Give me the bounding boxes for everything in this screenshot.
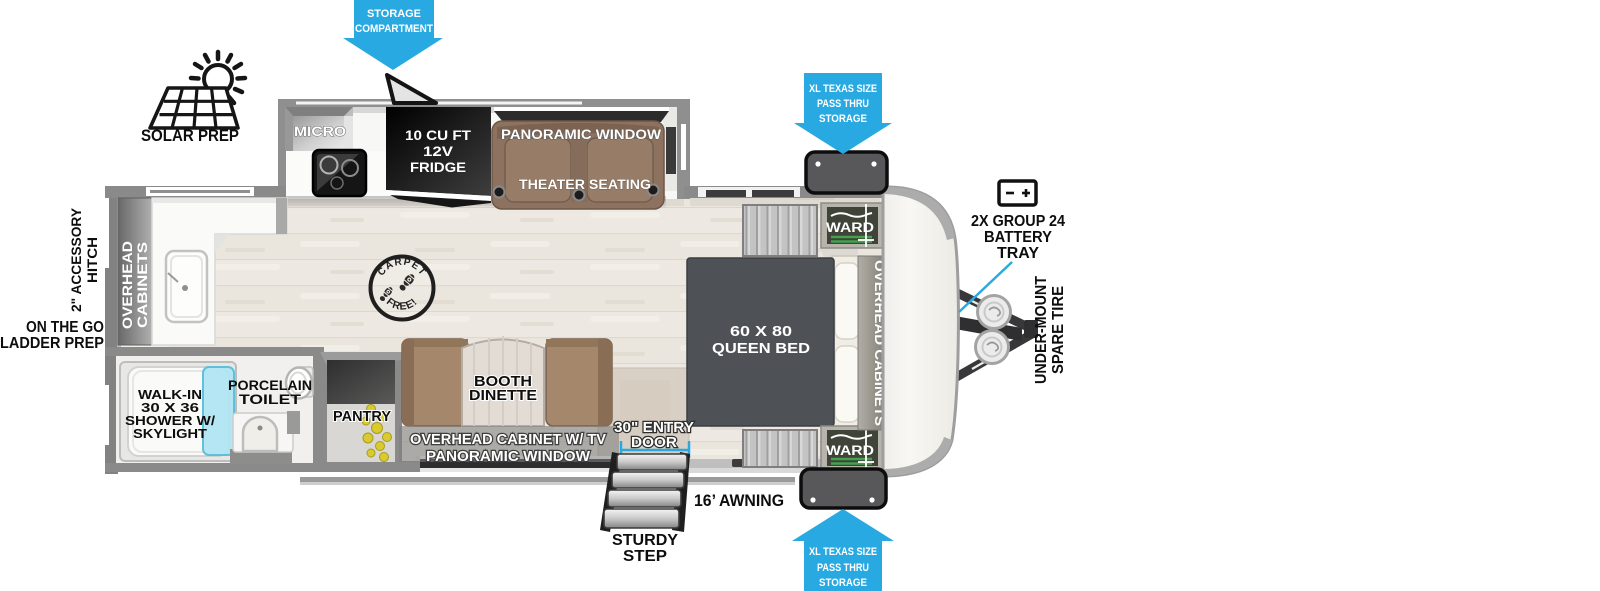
svg-text:10 CU FT: 10 CU FT bbox=[405, 127, 471, 143]
svg-text:SKYLIGHT: SKYLIGHT bbox=[133, 426, 207, 441]
svg-text:CABINETS: CABINETS bbox=[135, 242, 150, 328]
svg-text:QUEEN BED: QUEEN BED bbox=[712, 341, 810, 357]
svg-text:XL TEXAS SIZE: XL TEXAS SIZE bbox=[809, 546, 877, 558]
svg-text:WARD: WARD bbox=[826, 443, 874, 458]
svg-text:XL TEXAS SIZE: XL TEXAS SIZE bbox=[809, 83, 877, 95]
svg-text:HITCH: HITCH bbox=[85, 237, 100, 283]
svg-text:OVERHEAD: OVERHEAD bbox=[120, 241, 135, 329]
svg-text:30" ENTRY: 30" ENTRY bbox=[614, 420, 694, 436]
svg-text:PASS THRU: PASS THRU bbox=[817, 562, 869, 574]
svg-text:UNDER-MOUNT: UNDER-MOUNT bbox=[1033, 276, 1050, 384]
svg-text:TRAY: TRAY bbox=[997, 245, 1040, 262]
svg-text:MICRO: MICRO bbox=[294, 124, 346, 139]
svg-text:12V: 12V bbox=[423, 143, 454, 159]
svg-text:DINETTE: DINETTE bbox=[469, 387, 537, 404]
svg-text:DOOR: DOOR bbox=[631, 435, 678, 451]
svg-text:STORAGE: STORAGE bbox=[819, 113, 867, 125]
svg-text:STURDY: STURDY bbox=[612, 532, 679, 549]
svg-text:PANORAMIC WINDOW: PANORAMIC WINDOW bbox=[501, 127, 661, 142]
svg-text:STEP: STEP bbox=[623, 548, 667, 565]
svg-text:PASS THRU: PASS THRU bbox=[817, 98, 869, 110]
svg-text:BATTERY: BATTERY bbox=[984, 229, 1053, 246]
svg-text:SPARE TIRE: SPARE TIRE bbox=[1050, 286, 1067, 374]
svg-text:PANORAMIC WINDOW: PANORAMIC WINDOW bbox=[426, 449, 590, 465]
svg-text:THEATER SEATING: THEATER SEATING bbox=[519, 177, 651, 192]
svg-text:OVERHEAD CABINET W/ TV: OVERHEAD CABINET W/ TV bbox=[410, 432, 606, 448]
svg-text:LADDER PREP: LADDER PREP bbox=[0, 335, 104, 352]
svg-text:PORCELAIN: PORCELAIN bbox=[228, 378, 312, 393]
svg-text:STORAGE: STORAGE bbox=[367, 8, 421, 20]
svg-text:FRIDGE: FRIDGE bbox=[410, 159, 466, 175]
svg-text:60 X 80: 60 X 80 bbox=[730, 324, 792, 340]
svg-text:16’ AWNING: 16’ AWNING bbox=[694, 492, 784, 510]
svg-text:STORAGE: STORAGE bbox=[819, 577, 867, 589]
svg-text:SOLAR PREP: SOLAR PREP bbox=[141, 126, 239, 145]
svg-text:COMPARTMENT: COMPARTMENT bbox=[355, 23, 433, 35]
svg-text:WARD: WARD bbox=[826, 220, 874, 235]
svg-text:2X GROUP 24: 2X GROUP 24 bbox=[971, 213, 1065, 230]
svg-text:TOILET: TOILET bbox=[239, 392, 302, 407]
svg-text:2" ACCESSORY: 2" ACCESSORY bbox=[69, 208, 84, 312]
svg-text:PANTRY: PANTRY bbox=[333, 409, 391, 425]
svg-text:ON THE GO: ON THE GO bbox=[26, 319, 104, 336]
